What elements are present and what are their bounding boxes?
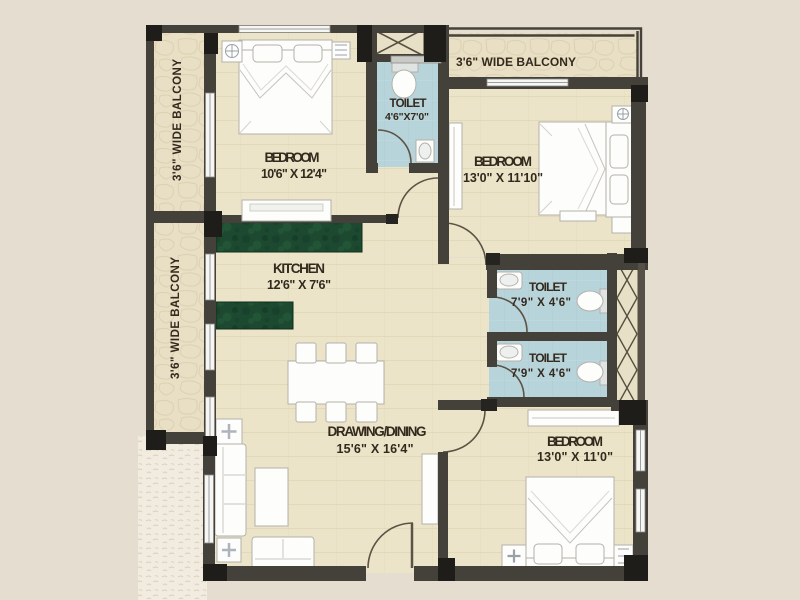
svg-text:12'6" X 7'6": 12'6" X 7'6" <box>267 278 331 292</box>
svg-text:15'6" X 16'4": 15'6" X 16'4" <box>337 442 414 456</box>
svg-text:BEDROOM: BEDROOM <box>474 154 532 169</box>
svg-text:3'6" WIDE BALCONY: 3'6" WIDE BALCONY <box>170 257 182 379</box>
svg-text:KITCHEN: KITCHEN <box>273 261 325 276</box>
svg-text:3'6" WIDE BALCONY: 3'6" WIDE BALCONY <box>456 55 576 69</box>
svg-text:7'9" X 4'6": 7'9" X 4'6" <box>511 297 571 309</box>
svg-text:DRAWING/DINING: DRAWING/DINING <box>328 424 427 439</box>
svg-text:7'9" X 4'6": 7'9" X 4'6" <box>511 368 571 380</box>
svg-text:3'6" WIDE BALCONY: 3'6" WIDE BALCONY <box>172 59 184 181</box>
svg-text:BEDROOM: BEDROOM <box>547 434 603 449</box>
svg-text:13'0" X 11'0": 13'0" X 11'0" <box>537 450 613 464</box>
svg-text:TOILET: TOILET <box>390 98 427 110</box>
svg-text:10'6" X 12'4": 10'6" X 12'4" <box>261 167 327 181</box>
svg-text:TOILET: TOILET <box>529 351 568 365</box>
svg-text:4'6"X7'0": 4'6"X7'0" <box>385 111 429 123</box>
svg-text:TOILET: TOILET <box>529 280 568 294</box>
svg-text:BEDROOM: BEDROOM <box>265 150 320 165</box>
svg-text:13'0" X 11'10": 13'0" X 11'10" <box>463 171 543 185</box>
